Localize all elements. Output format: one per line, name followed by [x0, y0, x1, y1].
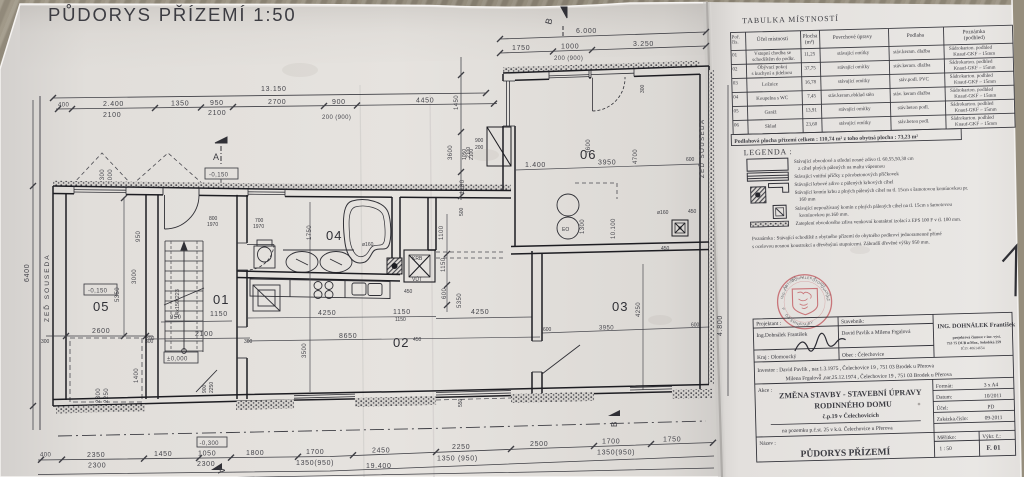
- svg-text:4250: 4250: [318, 310, 336, 317]
- svg-text:02: 02: [393, 335, 409, 350]
- svg-text:2100: 2100: [195, 331, 213, 338]
- svg-text:Koupelna s WC: Koupelna s WC: [756, 96, 789, 102]
- svg-text:-0,150: -0,150: [88, 289, 108, 295]
- svg-text:Zakázka.číslo:: Zakázka.číslo:: [937, 416, 969, 423]
- svg-text:Podlaha: Podlaha: [907, 33, 925, 39]
- svg-text:06: 06: [734, 123, 740, 128]
- svg-text:400: 400: [58, 103, 69, 109]
- svg-text:600: 600: [691, 323, 700, 329]
- svg-text:2500: 2500: [530, 441, 548, 448]
- svg-text:550: 550: [458, 398, 464, 407]
- svg-text:Vstupní chodba se: Vstupní chodba se: [754, 51, 792, 57]
- svg-text:stáv.podl. PVC: stáv.podl. PVC: [899, 77, 930, 83]
- svg-text:3 x A4: 3 x A4: [984, 382, 999, 388]
- svg-text:stávající omítky: stávající omítky: [839, 107, 872, 113]
- svg-text:600: 600: [543, 327, 552, 333]
- svg-text:RODINNÉHO DOMU: RODINNÉHO DOMU: [814, 398, 892, 410]
- svg-text:6400: 6400: [24, 264, 31, 282]
- svg-text:400: 400: [40, 453, 51, 459]
- svg-text:Kraj : Olomoucký: Kraj : Olomoucký: [757, 354, 797, 361]
- svg-text:900: 900: [475, 138, 484, 144]
- svg-text:1050: 1050: [198, 451, 216, 458]
- svg-text:10/2011: 10/2011: [984, 393, 1002, 399]
- svg-text:±0,000: ±0,000: [167, 357, 188, 363]
- svg-text:3600: 3600: [586, 139, 592, 154]
- svg-text:3500: 3500: [302, 343, 308, 358]
- svg-text:2450: 2450: [372, 447, 390, 454]
- svg-text:10.100: 10.100: [611, 218, 617, 239]
- svg-text:950: 950: [136, 231, 142, 242]
- svg-text:2250: 2250: [209, 382, 215, 393]
- svg-text:8650: 8650: [339, 333, 357, 340]
- svg-text:(podhled): (podhled): [964, 34, 985, 42]
- svg-text:Akce :: Akce :: [758, 388, 773, 394]
- svg-text:1350(950): 1350(950): [597, 450, 635, 457]
- svg-text:stáv.keram. dlažba: stáv.keram. dlažba: [893, 63, 931, 69]
- svg-text:05: 05: [734, 109, 740, 114]
- svg-text:09-2011: 09-2011: [985, 415, 1003, 421]
- svg-text:1300: 1300: [580, 219, 586, 234]
- svg-text:01: 01: [732, 53, 738, 58]
- svg-text:05: 05: [93, 299, 109, 314]
- svg-text:450: 450: [688, 209, 697, 215]
- svg-text:200 (900): 200 (900): [322, 115, 351, 121]
- svg-text:1150: 1150: [393, 309, 411, 316]
- svg-text:1150: 1150: [395, 317, 406, 323]
- svg-text:stáv.keram. dlažba: stáv.keram. dlažba: [893, 49, 931, 55]
- svg-text:-0,150: -0,150: [209, 173, 229, 179]
- svg-text:3950: 3950: [599, 326, 614, 332]
- svg-text:01: 01: [213, 292, 229, 307]
- svg-text:A: A: [213, 152, 219, 162]
- svg-text:2700: 2700: [268, 99, 286, 106]
- svg-text:2300: 2300: [88, 463, 106, 470]
- svg-text:04: 04: [326, 228, 342, 243]
- svg-text:stáv. keram dlažba: stáv. keram dlažba: [893, 91, 931, 97]
- svg-text:1970: 1970: [207, 222, 218, 228]
- svg-text:5350: 5350: [115, 287, 121, 302]
- svg-text:ZEĎ SOUSEDA: ZEĎ SOUSEDA: [42, 253, 51, 322]
- svg-text:2.400: 2.400: [103, 101, 124, 108]
- svg-text:23,60: 23,60: [806, 122, 818, 127]
- svg-text:02: 02: [732, 67, 738, 72]
- svg-text:2300: 2300: [96, 388, 102, 403]
- svg-text:s kuchyní a jídelnou: s kuchyní a jídelnou: [752, 71, 793, 77]
- svg-text:1150: 1150: [441, 257, 447, 272]
- svg-text:2600: 2600: [92, 328, 110, 335]
- svg-text:Stavebník:: Stavebník:: [841, 319, 865, 326]
- svg-text:IČO: 40614654: IČO: 40614654: [961, 345, 985, 351]
- svg-text:1700: 1700: [602, 439, 620, 446]
- svg-text:EO: EO: [562, 227, 569, 233]
- svg-text:Název :: Název :: [759, 441, 776, 447]
- svg-text:1970: 1970: [253, 224, 264, 230]
- svg-text:450: 450: [413, 337, 422, 343]
- svg-text:16,78: 16,78: [805, 80, 817, 85]
- svg-text:14x150/223: 14x150/223: [175, 289, 181, 318]
- svg-text:stávající omítky: stávající omítky: [839, 121, 872, 127]
- svg-text:3.250: 3.250: [633, 41, 654, 48]
- svg-text:Povrchové úpravy: Povrchové úpravy: [833, 34, 873, 41]
- svg-text:1050: 1050: [462, 149, 468, 160]
- svg-text:Datum:: Datum:: [936, 394, 953, 400]
- svg-text:stáv.beton podl.: stáv.beton podl.: [898, 119, 930, 125]
- svg-text:1800: 1800: [246, 450, 264, 457]
- svg-text:-0,300: -0,300: [200, 441, 220, 447]
- svg-text:1000: 1000: [561, 44, 579, 51]
- svg-text:04: 04: [733, 95, 739, 100]
- svg-text:1700: 1700: [306, 449, 324, 456]
- svg-text:VÚT: VÚT: [412, 276, 422, 283]
- svg-text:11,25: 11,25: [804, 52, 816, 57]
- svg-text:stávající omítky: stávající omítky: [837, 51, 870, 57]
- svg-text:čís.: čís.: [732, 40, 739, 45]
- svg-text:13.150: 13.150: [261, 86, 287, 93]
- svg-text:1750: 1750: [512, 45, 530, 52]
- svg-text:3600: 3600: [448, 145, 454, 160]
- svg-text:1750: 1750: [663, 437, 681, 444]
- svg-text:600: 600: [442, 288, 448, 299]
- svg-text:1350 (950): 1350 (950): [437, 456, 478, 463]
- svg-text:stávající omítky: stávající omítky: [837, 65, 870, 71]
- svg-text:4.800: 4.800: [717, 315, 724, 336]
- svg-text:19.400: 19.400: [366, 463, 392, 470]
- svg-text:1 : 50: 1 : 50: [939, 446, 952, 452]
- svg-text:1450: 1450: [454, 95, 460, 110]
- svg-text:300: 300: [41, 339, 50, 345]
- svg-text:1100: 1100: [460, 179, 466, 194]
- svg-text:37,75: 37,75: [804, 66, 816, 71]
- svg-text:300: 300: [244, 339, 253, 345]
- svg-text:6.000: 6.000: [576, 28, 597, 35]
- svg-text:450: 450: [661, 246, 670, 252]
- svg-text:KRB: KRB: [412, 256, 423, 262]
- svg-text:PD: PD: [987, 404, 994, 410]
- svg-text:2350: 2350: [87, 452, 105, 459]
- svg-text:03: 03: [733, 81, 739, 86]
- svg-text:1.400: 1.400: [525, 162, 546, 169]
- svg-text:LEGENDA :: LEGENDA :: [744, 147, 793, 157]
- svg-text:Sklad: Sklad: [765, 124, 777, 129]
- svg-text:1400: 1400: [134, 368, 140, 383]
- svg-text:1150: 1150: [210, 311, 228, 318]
- svg-text:Ložnice: Ložnice: [762, 82, 779, 87]
- svg-text:160 mm: 160 mm: [799, 197, 816, 202]
- svg-text:3950: 3950: [598, 160, 616, 167]
- svg-text:Garáž: Garáž: [765, 110, 778, 115]
- svg-text:450: 450: [404, 289, 413, 295]
- svg-text:500: 500: [459, 207, 465, 216]
- svg-text:4700: 4700: [633, 149, 639, 164]
- svg-text:B: B: [610, 422, 619, 427]
- svg-text:PŮDORYS PŘÍZEMÍ 1:50: PŮDORYS PŘÍZEMÍ 1:50: [48, 4, 296, 25]
- svg-text:200 (900): 200 (900): [554, 56, 583, 62]
- svg-text:Formát:: Formát:: [936, 383, 954, 389]
- svg-text:2250: 2250: [104, 388, 110, 403]
- svg-text:900: 900: [332, 99, 346, 106]
- svg-text:1350(950): 1350(950): [296, 460, 334, 467]
- svg-text:1100: 1100: [439, 225, 445, 240]
- svg-text:Obývací pokoj: Obývací pokoj: [757, 65, 787, 71]
- svg-text:2100: 2100: [208, 110, 226, 117]
- svg-text:900: 900: [202, 384, 208, 393]
- svg-text:3000: 3000: [132, 269, 138, 284]
- svg-text:950: 950: [210, 100, 224, 107]
- svg-text:stáv.beton podl.: stáv.beton podl.: [898, 105, 930, 111]
- svg-text:F. 01: F. 01: [986, 444, 1001, 452]
- svg-text:ø160: ø160: [362, 242, 374, 248]
- svg-text:300: 300: [640, 84, 646, 93]
- svg-text:2250: 2250: [452, 444, 470, 451]
- svg-text:ø160: ø160: [657, 210, 669, 216]
- svg-text:4250: 4250: [471, 309, 489, 316]
- svg-text:Projektant :: Projektant :: [756, 321, 782, 328]
- svg-text:Výkr. č.:: Výkr. č.:: [982, 434, 1001, 441]
- svg-text:stávající omítky: stávající omítky: [838, 79, 871, 85]
- svg-text:A: A: [215, 467, 226, 474]
- svg-text:1450: 1450: [154, 451, 172, 458]
- svg-text:4250: 4250: [636, 302, 642, 317]
- svg-text:1350: 1350: [171, 101, 189, 108]
- svg-text:2300: 2300: [197, 461, 215, 468]
- svg-text:03: 03: [612, 299, 628, 314]
- svg-text:5350: 5350: [457, 293, 463, 308]
- svg-text:950: 950: [170, 315, 181, 321]
- svg-text:ZEĎ SOUSEDA: ZEĎ SOUSEDA: [698, 118, 706, 178]
- svg-text:600: 600: [686, 157, 695, 163]
- svg-text:(m²): (m²): [805, 38, 815, 45]
- svg-text:2100: 2100: [103, 112, 121, 119]
- svg-text:4450: 4450: [416, 98, 434, 105]
- svg-text:7,45: 7,45: [807, 94, 816, 99]
- svg-text:Měřítko:: Měřítko:: [937, 435, 957, 442]
- svg-text:13,91: 13,91: [806, 108, 818, 113]
